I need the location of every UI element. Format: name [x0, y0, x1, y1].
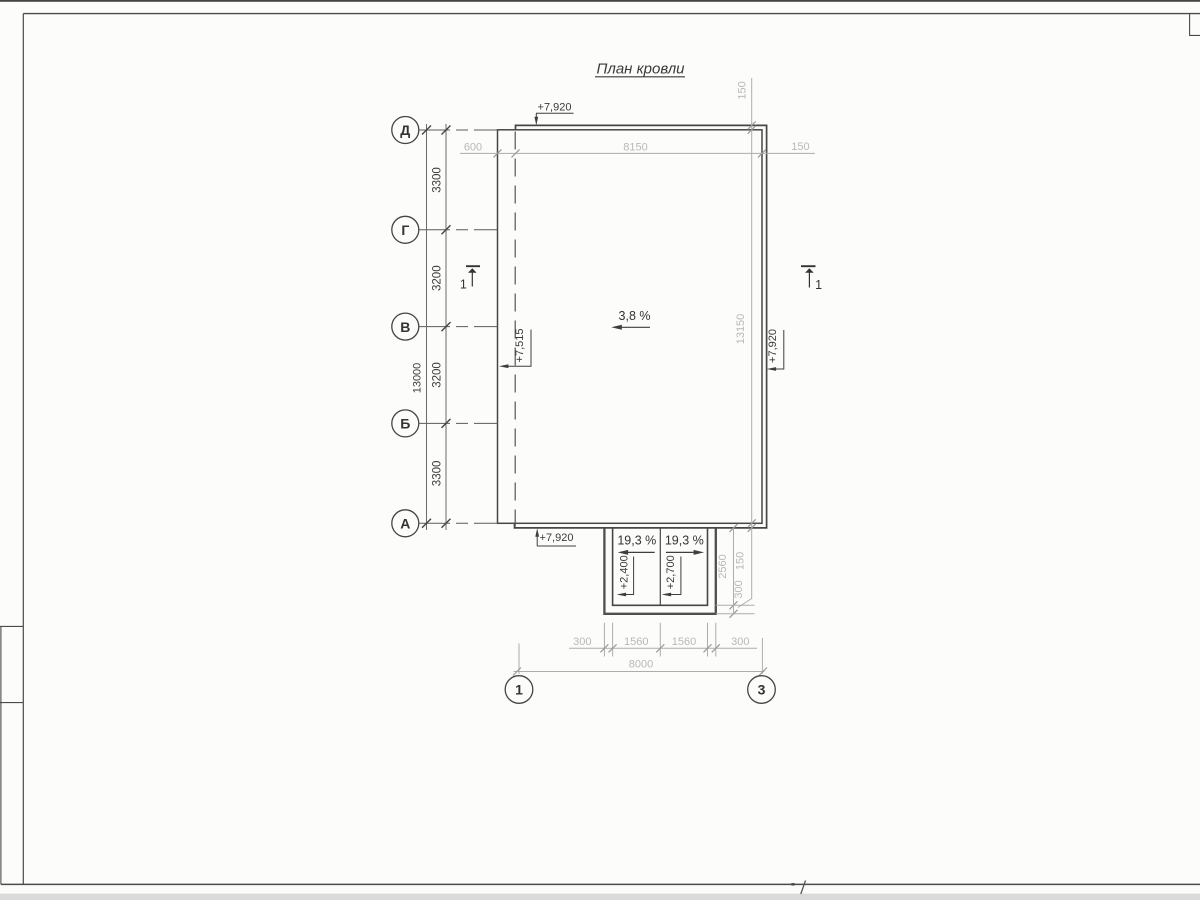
- svg-text:1: 1: [460, 278, 467, 292]
- svg-text:8000: 8000: [629, 659, 653, 671]
- svg-text:+7,920: +7,920: [767, 329, 779, 363]
- svg-text:+2,700: +2,700: [665, 555, 677, 589]
- svg-text:19,3 %: 19,3 %: [617, 534, 656, 548]
- svg-text:Г: Г: [401, 222, 409, 238]
- svg-text:13000: 13000: [412, 363, 424, 394]
- svg-text:+7,920: +7,920: [538, 101, 572, 113]
- svg-text:300: 300: [731, 636, 749, 648]
- svg-text:600: 600: [464, 141, 482, 153]
- svg-text:3,8 %: 3,8 %: [619, 309, 651, 323]
- svg-text:150: 150: [736, 81, 748, 99]
- svg-text:+7,920: +7,920: [540, 532, 574, 544]
- svg-text:150: 150: [734, 552, 746, 570]
- svg-text:3: 3: [758, 682, 766, 698]
- svg-text:1560: 1560: [672, 636, 696, 648]
- svg-text:А: А: [400, 516, 410, 532]
- svg-text:8150: 8150: [623, 141, 647, 153]
- svg-text:300: 300: [733, 580, 745, 598]
- svg-text:2560: 2560: [717, 554, 729, 578]
- svg-text:План кровли: План кровли: [597, 61, 686, 78]
- svg-text:+7,515: +7,515: [514, 329, 526, 363]
- svg-text:3200: 3200: [432, 265, 444, 291]
- svg-text:1560: 1560: [624, 636, 648, 648]
- svg-text:3300: 3300: [432, 461, 444, 487]
- svg-text:150: 150: [791, 141, 809, 153]
- svg-text:300: 300: [573, 636, 591, 648]
- svg-text:Д: Д: [400, 122, 410, 138]
- svg-text:1: 1: [515, 682, 523, 698]
- svg-text:+2,400: +2,400: [619, 555, 631, 589]
- svg-text:13150: 13150: [735, 314, 747, 345]
- svg-text:3200: 3200: [432, 362, 444, 388]
- svg-text:Б: Б: [400, 416, 410, 432]
- svg-text:19,3 %: 19,3 %: [665, 534, 704, 548]
- svg-text:В: В: [400, 319, 410, 335]
- svg-text:3300: 3300: [432, 167, 444, 193]
- svg-text:1: 1: [815, 278, 822, 292]
